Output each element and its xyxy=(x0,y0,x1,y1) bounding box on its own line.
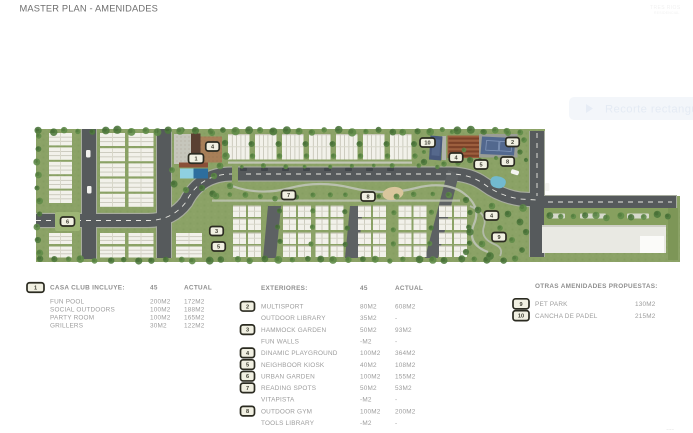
svg-text:3: 3 xyxy=(215,229,218,235)
svg-text:1: 1 xyxy=(194,157,197,163)
svg-text:-M2: -M2 xyxy=(360,397,372,404)
svg-text:45: 45 xyxy=(150,285,158,292)
svg-text:RESIDENCIAL: RESIDENCIAL xyxy=(654,11,680,15)
svg-text:DINAMIC PLAYGROUND: DINAMIC PLAYGROUND xyxy=(261,350,338,357)
svg-text:1: 1 xyxy=(34,286,37,292)
svg-text:READING SPOTS: READING SPOTS xyxy=(261,385,316,392)
svg-text:45: 45 xyxy=(360,285,368,292)
svg-text:155M2: 155M2 xyxy=(395,373,416,380)
svg-text:MASTER PLAN - AMENIDADES: MASTER PLAN - AMENIDADES xyxy=(20,4,158,14)
svg-text:215M2: 215M2 xyxy=(635,313,656,320)
svg-text:53M2: 53M2 xyxy=(395,385,412,392)
svg-text:CANCHA DE PADEL: CANCHA DE PADEL xyxy=(535,313,598,320)
svg-text:OUTDOOR LIBRARY: OUTDOOR LIBRARY xyxy=(261,315,326,322)
svg-text:ACTUAL: ACTUAL xyxy=(184,285,212,292)
svg-text:2: 2 xyxy=(246,304,249,310)
svg-text:-: - xyxy=(395,397,397,404)
svg-text:188M2: 188M2 xyxy=(184,307,205,314)
svg-text:MULTISPORT: MULTISPORT xyxy=(261,304,304,311)
svg-text:108M2: 108M2 xyxy=(395,362,416,369)
svg-text:OTRAS AMENIDADES PROPUESTAS:: OTRAS AMENIDADES PROPUESTAS: xyxy=(535,283,658,290)
svg-text:7: 7 xyxy=(287,193,290,199)
svg-text:VITAPISTA: VITAPISTA xyxy=(261,397,295,404)
svg-text:100M2: 100M2 xyxy=(360,350,381,357)
svg-text:SOCIAL OUTDOORS: SOCIAL OUTDOORS xyxy=(50,307,115,314)
svg-text:7: 7 xyxy=(246,386,249,392)
svg-text:172M2: 172M2 xyxy=(184,299,205,306)
svg-text:URBAN GARDEN: URBAN GARDEN xyxy=(261,373,315,380)
svg-text:35M2: 35M2 xyxy=(360,315,377,322)
svg-text:5: 5 xyxy=(479,163,482,169)
svg-text:6: 6 xyxy=(246,374,249,380)
svg-text:10: 10 xyxy=(424,141,430,147)
svg-text:FUN POOL: FUN POOL xyxy=(50,299,85,306)
svg-text:100M2: 100M2 xyxy=(360,408,381,415)
svg-text:PARTY ROOM: PARTY ROOM xyxy=(50,315,94,322)
svg-text:TOOLS LIBRARY: TOOLS LIBRARY xyxy=(261,420,315,427)
svg-text:8: 8 xyxy=(246,409,249,415)
svg-text:ACTUAL: ACTUAL xyxy=(395,285,423,292)
svg-text:50M2: 50M2 xyxy=(360,327,377,334)
svg-text:-M2: -M2 xyxy=(360,420,372,427)
svg-text:10: 10 xyxy=(518,314,524,320)
svg-text:9: 9 xyxy=(519,302,522,308)
svg-text:3: 3 xyxy=(246,328,249,334)
svg-text:CASA CLUB INCLUYE:: CASA CLUB INCLUYE: xyxy=(50,285,125,292)
svg-text:364M2: 364M2 xyxy=(395,350,416,357)
svg-text:50M2: 50M2 xyxy=(360,385,377,392)
svg-text:130M2: 130M2 xyxy=(635,301,656,308)
svg-text:2: 2 xyxy=(511,140,514,146)
svg-text:80M2: 80M2 xyxy=(360,304,377,311)
svg-text:122M2: 122M2 xyxy=(184,323,205,330)
svg-text:5: 5 xyxy=(246,363,249,369)
svg-text:100M2: 100M2 xyxy=(150,315,171,322)
svg-text:40M2: 40M2 xyxy=(360,362,377,369)
svg-text:EXTERIORES:: EXTERIORES: xyxy=(261,285,308,292)
svg-text:100M2: 100M2 xyxy=(360,373,381,380)
svg-text:~~~: ~~~ xyxy=(666,427,674,432)
svg-text:8: 8 xyxy=(506,160,509,166)
svg-text:FUN WALLS: FUN WALLS xyxy=(261,338,299,345)
svg-text:93M2: 93M2 xyxy=(395,327,412,334)
svg-text:HAMMOCK GARDEN: HAMMOCK GARDEN xyxy=(261,327,326,334)
svg-text:6: 6 xyxy=(66,220,69,226)
svg-text:PET PARK: PET PARK xyxy=(535,301,568,308)
svg-text:200M2: 200M2 xyxy=(150,299,171,306)
svg-text:OUTDOOR GYM: OUTDOOR GYM xyxy=(261,408,312,415)
svg-text:100M2: 100M2 xyxy=(150,307,171,314)
svg-text:5: 5 xyxy=(217,245,220,251)
svg-text:-: - xyxy=(395,338,397,345)
svg-text:-: - xyxy=(395,315,397,322)
svg-text:30M2: 30M2 xyxy=(150,323,167,330)
svg-text:9: 9 xyxy=(497,235,500,241)
svg-text:-: - xyxy=(395,420,397,427)
svg-text:Recorte rectangul: Recorte rectangul xyxy=(605,104,693,116)
svg-text:NEIGHBOOR KIOSK: NEIGHBOOR KIOSK xyxy=(261,362,325,369)
svg-text:200M2: 200M2 xyxy=(395,408,416,415)
svg-text:GRILLERS: GRILLERS xyxy=(50,323,83,330)
svg-text:165M2: 165M2 xyxy=(184,315,205,322)
svg-text:608M2: 608M2 xyxy=(395,304,416,311)
svg-text:-M2: -M2 xyxy=(360,338,372,345)
svg-text:8: 8 xyxy=(366,195,369,201)
